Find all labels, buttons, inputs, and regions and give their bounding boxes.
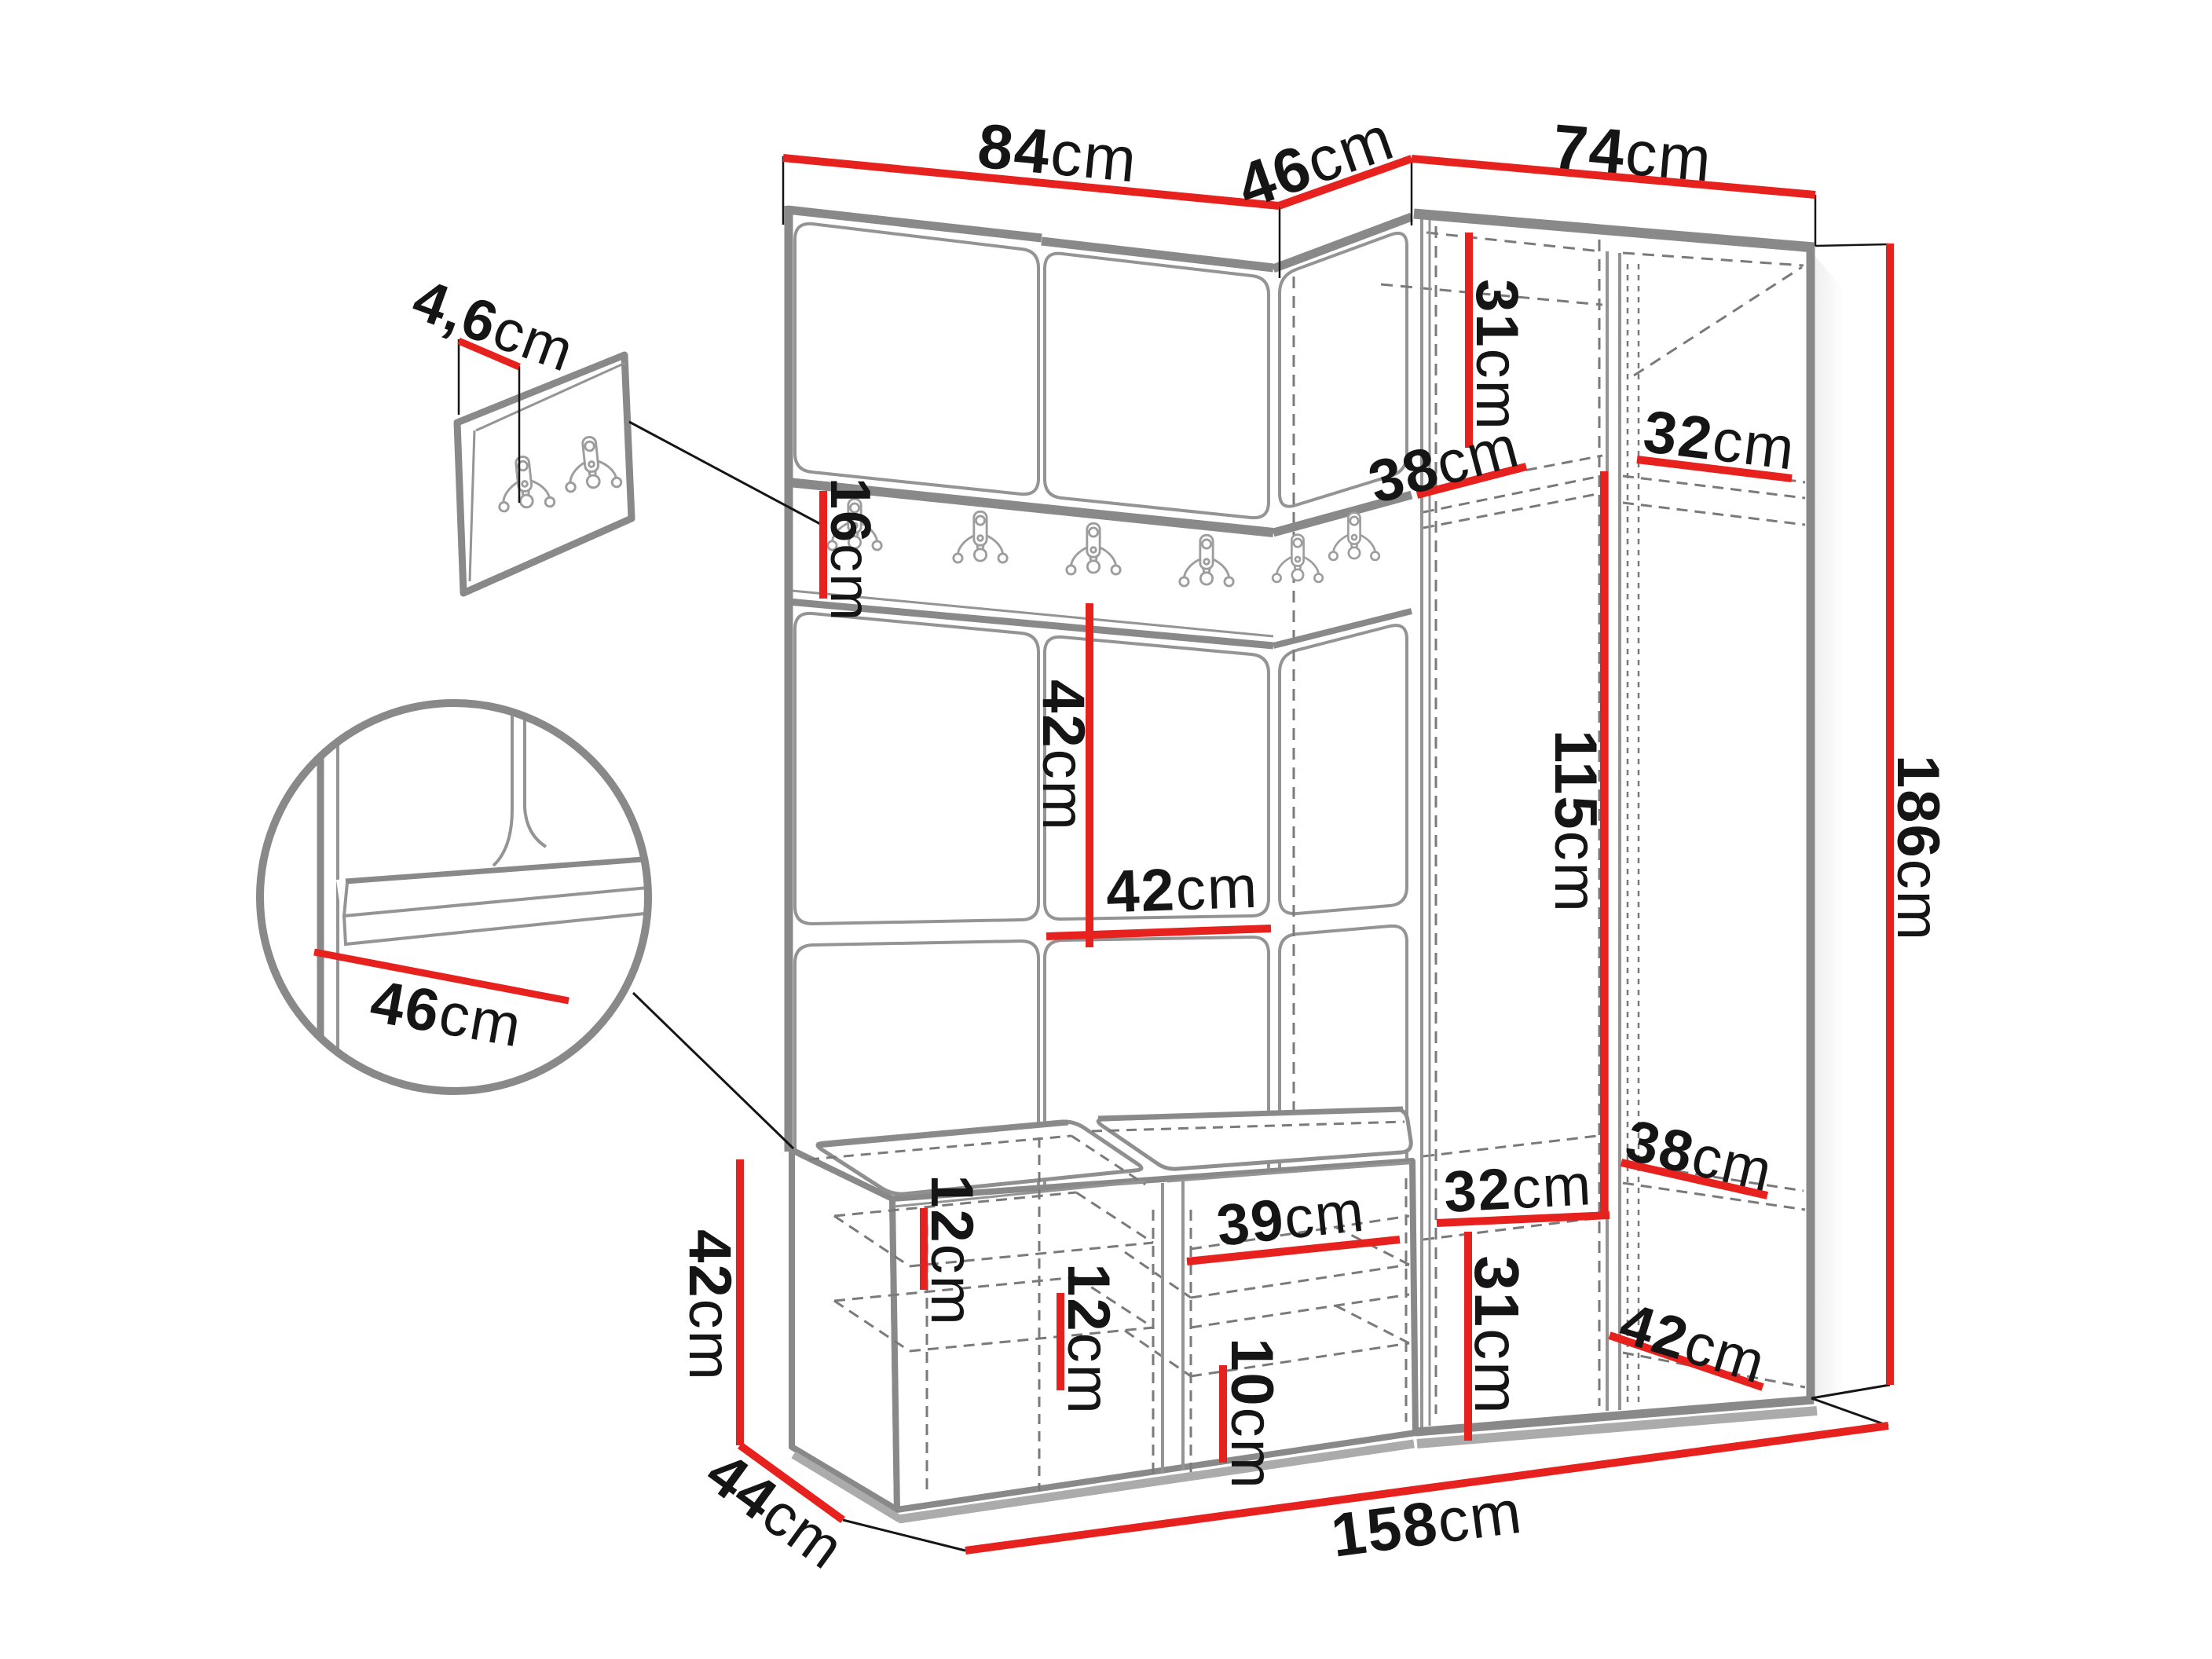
svg-text:74cm: 74cm [1550,111,1716,194]
svg-text:115cm: 115cm [1542,730,1609,914]
svg-text:42cm: 42cm [1105,854,1260,926]
svg-text:186cm: 186cm [1884,755,1951,942]
svg-text:42cm: 42cm [1030,679,1097,832]
svg-text:42cm: 42cm [676,1229,743,1382]
svg-text:31cm: 31cm [1462,1255,1532,1415]
svg-text:12cm: 12cm [1055,1263,1122,1415]
svg-text:12cm: 12cm [918,1174,985,1327]
svg-text:32cm: 32cm [1442,1152,1594,1225]
svg-text:10cm: 10cm [1218,1338,1285,1490]
svg-text:31cm: 31cm [1463,279,1530,431]
svg-text:16cm: 16cm [819,478,881,622]
